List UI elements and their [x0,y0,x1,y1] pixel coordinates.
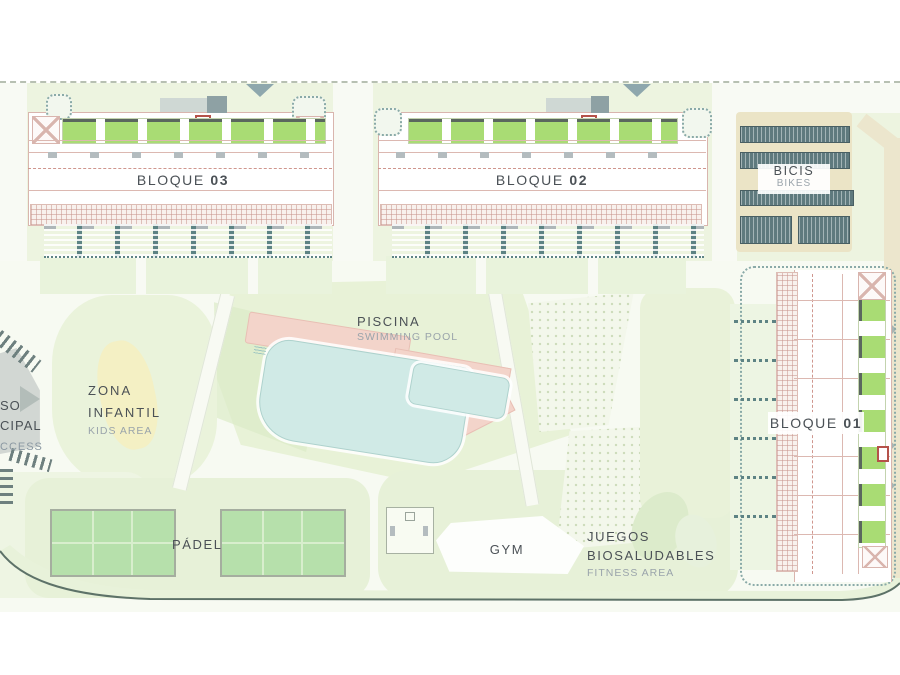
garden-fence [734,515,776,518]
bike-rack-row [798,216,850,244]
hedge [374,108,402,136]
bike-rack-row [740,216,792,244]
building-bloque-01: BLOQUE 01 [732,264,898,586]
fitness-subtitle: FITNESS AREA [587,567,674,579]
terrace-furniture [396,152,686,158]
bike-rack-row [740,126,850,143]
pool-steps-icon [253,345,266,355]
garden-fence [734,320,776,323]
hedge [682,108,712,138]
terrace-furniture [48,152,318,158]
block-number: 01 [843,415,862,431]
floor-line [378,190,706,191]
stair-core [862,546,888,568]
path-gap [136,256,146,294]
access-arrow-icon [20,386,40,412]
building-bloque-03: BLOQUE 03 [28,94,332,300]
garden-fence [734,437,776,440]
garden-fences [44,224,332,258]
equipment-icon [390,526,395,536]
garden-lawn-strip [40,256,332,294]
gym-equipment-pad [386,507,434,554]
floor-line [28,190,332,191]
floor-line [378,140,706,141]
block-label: BLOQUE 03 [88,172,278,188]
padel-court [220,509,346,577]
block-number: 03 [210,172,229,188]
building-bloque-02: BLOQUE 02 [372,94,712,300]
entrance-canopy [207,96,227,113]
path-gap [476,256,486,294]
terrace-paving [30,204,332,226]
bike-parking-area: BICIS BIKES [736,112,852,252]
block-name: BLOQUE [137,172,205,188]
gym-title: GYM [477,543,537,558]
path-gap [333,83,373,261]
padel-court [50,509,176,577]
path-gap [248,256,258,294]
block-number: 02 [569,172,588,188]
path-gap [737,83,900,113]
kids-subtitle: KIDS AREA [88,425,152,437]
entrance-canopy [160,98,208,112]
block-label: BLOQUE 02 [467,172,617,188]
kids-title-line2: INFANTIL [88,406,161,421]
access-label-line3: CCESS [0,441,43,453]
stair-core [858,272,886,300]
equipment-icon [405,512,415,521]
fitness-title-line2: BIOSALUDABLES [587,549,715,564]
pool-title: PISCINA [357,315,420,330]
path-gap [0,83,27,261]
terrace-paving [380,204,702,226]
bike-subtitle: BIKES [758,178,830,189]
entrance-canopy [591,96,609,113]
path-gap [712,83,737,261]
north-boundary-dashed [0,81,900,83]
garden-fences [392,224,704,258]
block-label: BLOQUE 01 [768,415,864,431]
pool-subtitle: SWIMMING POOL [357,331,458,343]
utility-box [877,446,889,462]
block-name: BLOQUE [496,172,564,188]
fitness-title-line1: JUEGOS [587,530,650,545]
site-plan: SO CIPAL CCESS PISCINA SWIMMING POOL ZON… [0,0,900,675]
garden-lawn-strip [386,256,686,294]
floor-line [28,140,332,141]
block-name: BLOQUE [770,415,838,431]
crosswalk [0,464,13,504]
garden-fence [734,398,776,401]
padel-title: PÁDEL [172,538,223,553]
access-label-line1: SO [0,399,21,414]
entrance-canopy [546,98,592,112]
garden-fence [734,359,776,362]
floor-line-dashed [28,168,332,169]
kids-title-line1: ZONA [88,384,132,399]
access-label-line2: CIPAL [0,419,42,434]
garden-fence [734,476,776,479]
floor-line-dashed [378,168,706,169]
path-gap [588,256,598,294]
bike-label-chip: BICIS BIKES [758,164,830,194]
bike-title: BICIS [758,164,830,178]
equipment-icon [423,526,428,536]
right-lawn [640,288,735,518]
